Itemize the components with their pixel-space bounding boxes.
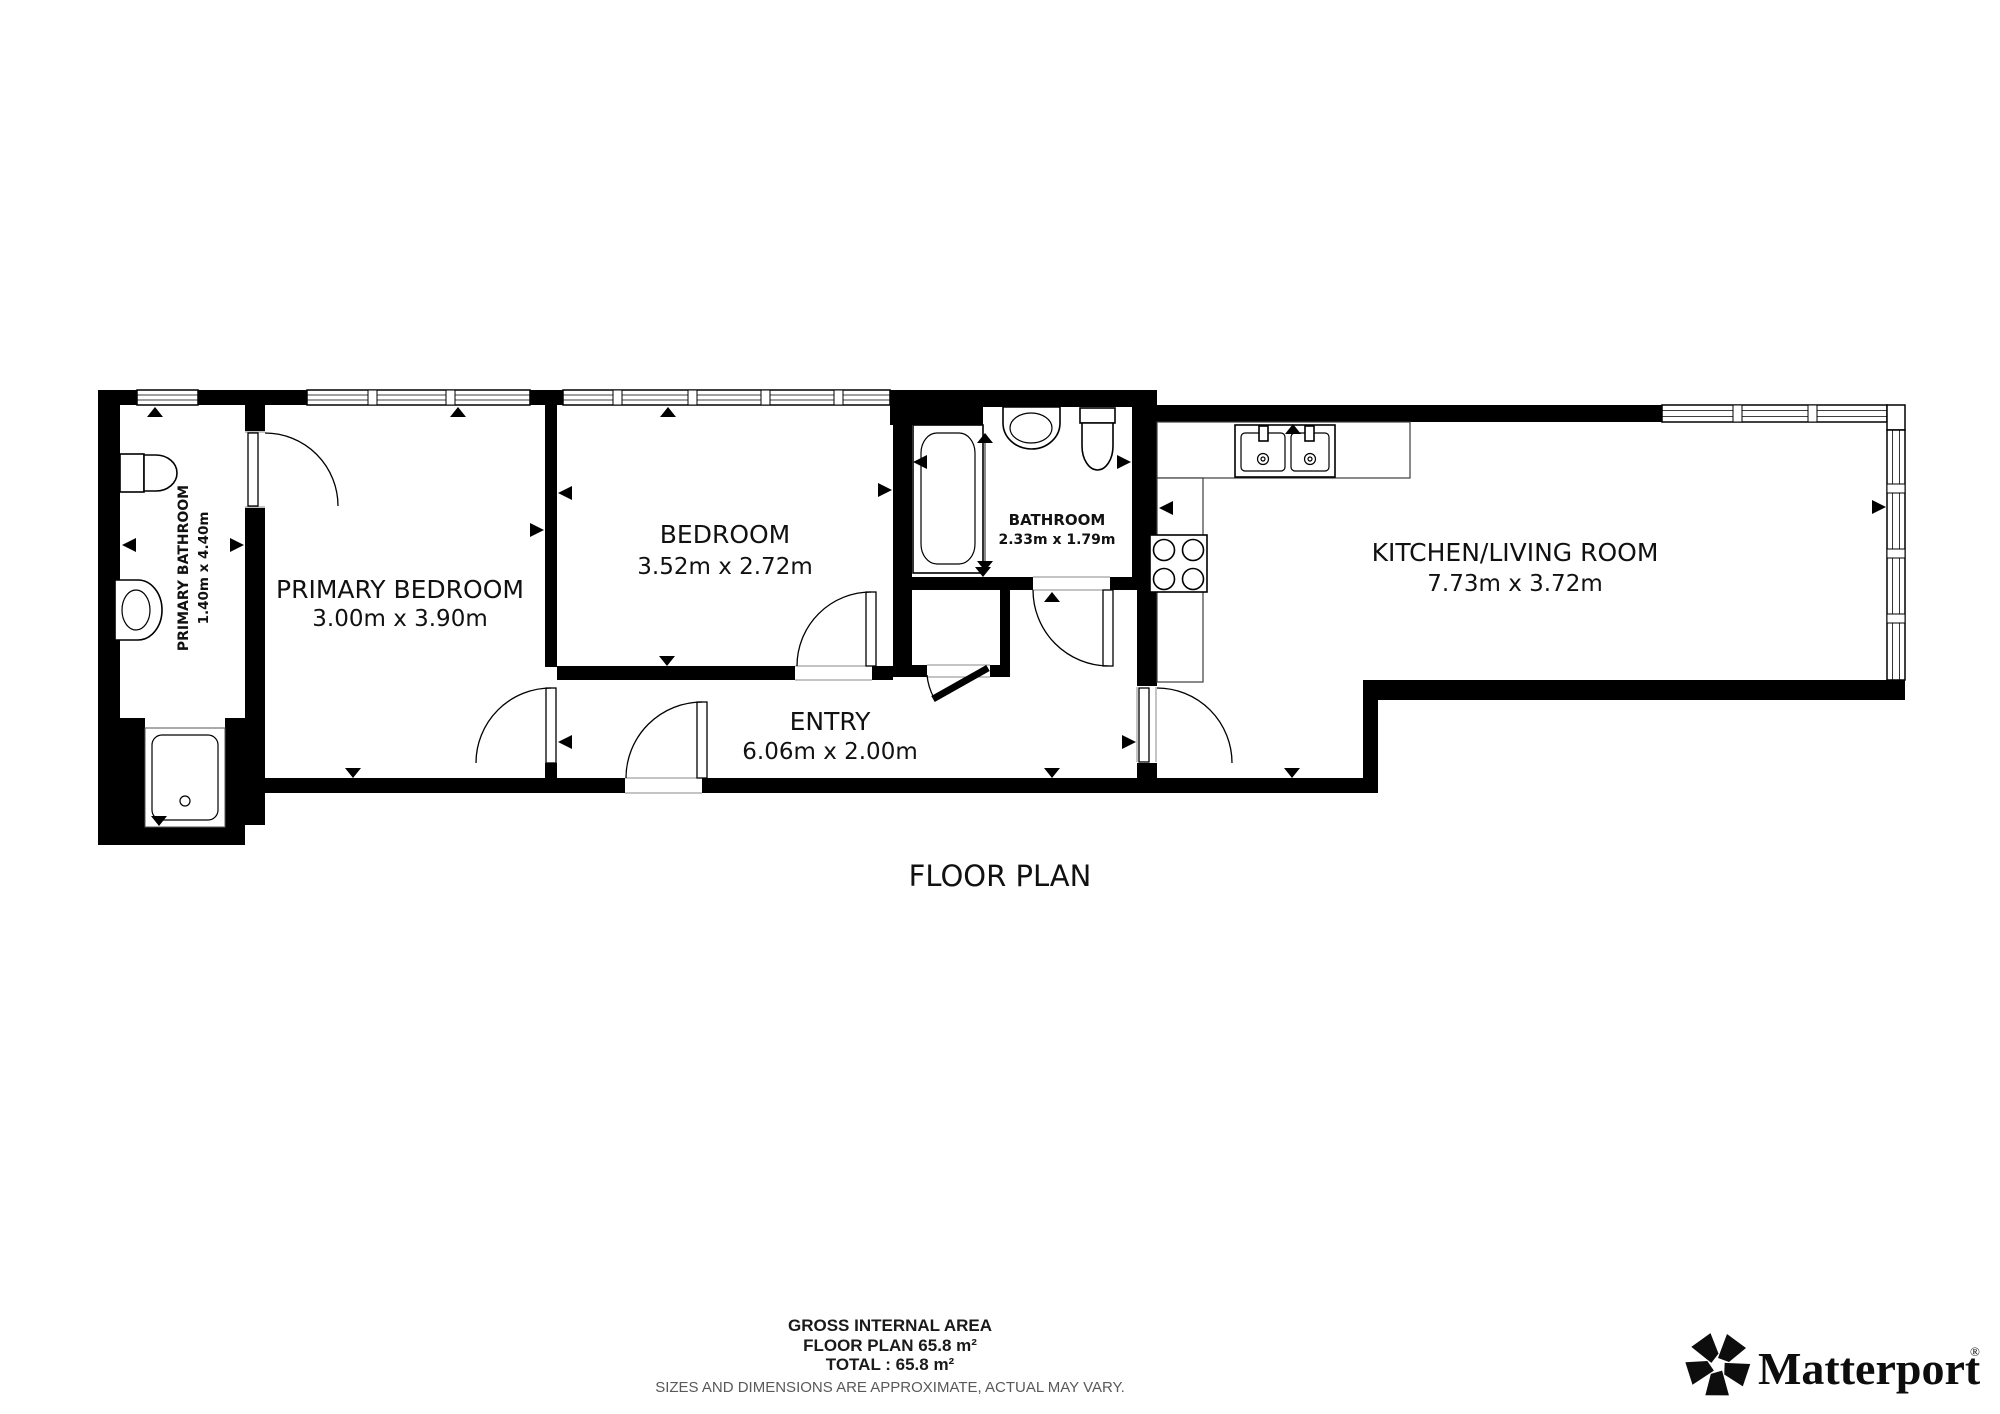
room-label-entry: ENTRY 6.06m x 2.00m: [742, 707, 917, 765]
bathroom-sink-icon: [1003, 407, 1060, 449]
primary-bathroom-name: PRIMARY BATHROOM: [176, 485, 192, 651]
room-label-bedroom: BEDROOM 3.52m x 2.72m: [637, 520, 812, 580]
door-kitchen: [1136, 686, 1232, 763]
door-bathroom: [1033, 576, 1113, 666]
matterport-wordmark: Matterport: [1758, 1343, 1981, 1394]
bathroom-name: BATHROOM: [1009, 511, 1106, 529]
kitchen-living-name: KITCHEN/LIVING ROOM: [1372, 538, 1659, 567]
window-primary-bedroom: [307, 390, 530, 405]
matterport-logo: Matterport ®: [1677, 1329, 1981, 1407]
footer-disclaimer: SIZES AND DIMENSIONS ARE APPROXIMATE, AC…: [655, 1379, 1125, 1396]
window-kitchen-top: [1662, 405, 1905, 430]
bedroom-dims: 3.52m x 2.72m: [637, 554, 812, 580]
primary-bedroom-dims: 3.00m x 3.90m: [312, 606, 487, 632]
footer-floor-area: FLOOR PLAN 65.8 m²: [803, 1336, 977, 1355]
footer: GROSS INTERNAL AREA FLOOR PLAN 65.8 m² T…: [655, 1316, 1125, 1396]
door-closet: [927, 664, 990, 699]
bathroom-dims: 2.33m x 1.79m: [998, 532, 1115, 548]
primary-sink-icon: [115, 580, 162, 640]
door-entry-main: [625, 702, 707, 794]
window-kitchen-right: [1887, 430, 1905, 680]
primary-bedroom-name: PRIMARY BEDROOM: [276, 575, 524, 604]
matterport-registered-mark: ®: [1970, 1344, 1980, 1359]
stove-icon: [1150, 535, 1207, 592]
door-bedroom: [795, 592, 876, 681]
entry-dims: 6.06m x 2.00m: [742, 739, 917, 765]
floor-plan-svg: PRIMARY BATHROOM 1.40m x 4.40m PRIMARY B…: [0, 0, 2000, 1414]
room-label-bathroom: BATHROOM 2.33m x 1.79m: [998, 511, 1115, 548]
page-title: FLOOR PLAN: [909, 859, 1092, 893]
bedroom-name: BEDROOM: [660, 520, 791, 549]
entry-name: ENTRY: [790, 707, 872, 736]
room-label-kitchen-living: KITCHEN/LIVING ROOM 7.73m x 3.72m: [1372, 538, 1659, 597]
primary-toilet-icon: [120, 454, 177, 492]
door-primary-bedroom: [476, 688, 556, 763]
double-sink-icon: [1235, 425, 1335, 477]
footer-total-area: TOTAL : 65.8 m²: [826, 1355, 955, 1374]
room-label-primary-bathroom: PRIMARY BATHROOM 1.40m x 4.40m: [176, 485, 212, 651]
footer-area-title: GROSS INTERNAL AREA: [788, 1316, 992, 1335]
room-label-primary-bedroom: PRIMARY BEDROOM 3.00m x 3.90m: [276, 575, 524, 632]
matterport-icon: [1677, 1329, 1756, 1407]
primary-bathroom-dims: 1.40m x 4.40m: [196, 512, 212, 625]
window-bedroom: [563, 390, 890, 405]
floor-plan-page: PRIMARY BATHROOM 1.40m x 4.40m PRIMARY B…: [0, 0, 2000, 1414]
kitchen-living-dims: 7.73m x 3.72m: [1427, 571, 1602, 597]
window-primary-bathroom: [137, 390, 198, 405]
bathroom-toilet-icon: [1080, 408, 1115, 470]
door-primary-bathroom: [244, 431, 338, 508]
shower-icon: [145, 728, 225, 827]
bathtub-icon: [913, 425, 983, 573]
